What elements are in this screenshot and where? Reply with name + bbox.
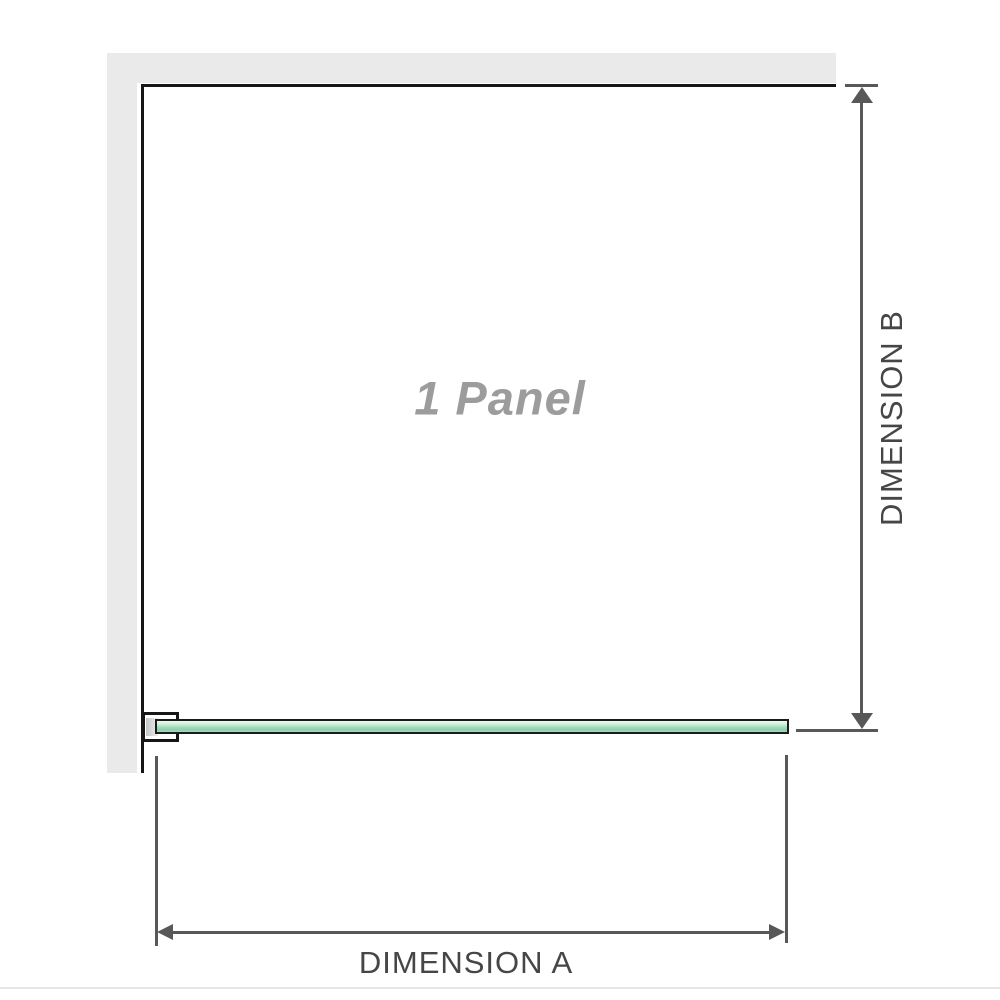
- shower-screen-diagram: 1 Panel DIMENSION B DIMENSION A: [0, 0, 1000, 1000]
- wall-top: [107, 53, 836, 83]
- arrowhead-down-icon: [851, 713, 873, 729]
- wall-left: [107, 53, 137, 773]
- dimension-a-label: DIMENSION A: [359, 945, 573, 981]
- frame-top-edge: [141, 84, 836, 87]
- dimension-a-tick-right: [785, 755, 788, 943]
- dimension-b-label: DIMENSION B: [874, 310, 910, 526]
- dimension-b-line: [860, 99, 863, 715]
- dimension-b-tick-bottom: [796, 729, 878, 732]
- frame-left-edge: [141, 84, 144, 773]
- glass-panel: [155, 719, 789, 734]
- dimension-a-line: [172, 931, 770, 934]
- dimension-a-tick-left: [155, 756, 158, 946]
- arrowhead-left-icon: [157, 924, 173, 940]
- arrowhead-up-icon: [851, 87, 873, 103]
- arrowhead-right-icon: [769, 924, 785, 940]
- bottom-separator: [0, 987, 1000, 989]
- panel-count-label: 1 Panel: [414, 371, 586, 426]
